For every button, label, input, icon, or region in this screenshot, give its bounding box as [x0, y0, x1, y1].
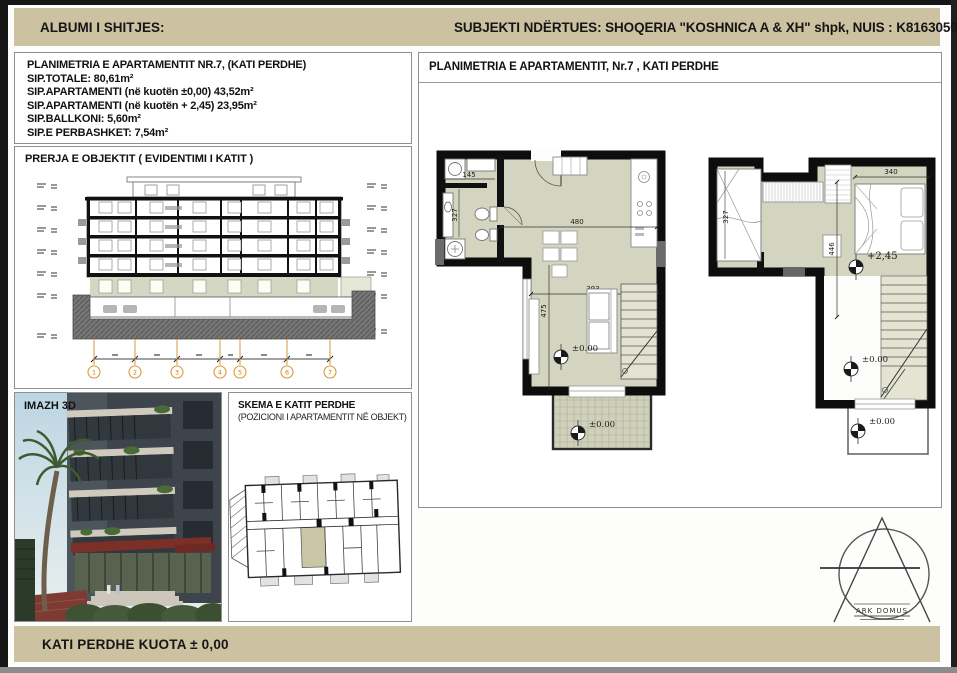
plan1-dim-327: 327: [451, 208, 459, 221]
info-line-total: SIP.TOTALE: 80,61m²: [27, 73, 407, 87]
building-section-drawing: 1 2 3 4 5 6 7: [15, 169, 411, 387]
ark-domus-logo-icon: ARK DOMUS: [818, 512, 946, 624]
apartment-7-highlight: [301, 527, 326, 568]
plan1-dim-145: 145: [462, 171, 475, 179]
plan2-dim-340: 340: [884, 168, 897, 176]
plan2-level-void: ±0.00: [862, 355, 888, 365]
axis-bubble-label: 3: [175, 370, 179, 377]
logo-text: ARK DOMUS: [856, 607, 908, 615]
page-frame-bottom: [0, 667, 957, 673]
info-line-balcony: SIP.BALLKONI: 5,60m²: [27, 113, 407, 127]
schema-title: SKEMA E KATIT PERDHE: [229, 393, 411, 411]
footer-band: KATI PERDHE KUOTA ± 0,00: [14, 626, 940, 662]
info-line-apt-0: SIP.APARTAMENTI (në kuotën ±0,00) 43,52m…: [27, 86, 407, 100]
render-3d-label: IMAZH 3D: [24, 400, 76, 412]
plan2-dim-446: 446: [828, 242, 836, 256]
axis-bubble-label: 1: [92, 370, 96, 377]
page-frame-top: [0, 0, 957, 5]
info-line-common: SIP.E PERBASHKET: 7,54m²: [27, 127, 407, 141]
building-section-box: PRERJA E OBJEKTIT ( EVIDENTIMI I KATIT ): [14, 146, 412, 389]
plan1-level-balcony: ±0.00: [589, 420, 615, 430]
plan2-level-balcony: ±0.00: [869, 417, 895, 427]
builder-subject: SUBJEKTI NDËRTUES: SHOQERIA "KOSHNICA A …: [454, 20, 957, 35]
info-line-apt-245: SIP.APARTAMENTI (në kuotën + 2,45) 23,95…: [27, 100, 407, 114]
apartment-info-box: PLANIMETRIA E APARTAMENTIT NR.7, (KATI P…: [14, 52, 412, 144]
building-render-illustration: [15, 393, 221, 621]
plan2-level-upper: +2,45: [867, 251, 898, 262]
info-title: PLANIMETRIA E APARTAMENTIT NR.7, (KATI P…: [27, 59, 407, 73]
page-frame-left: [0, 0, 8, 673]
schema-subtitle: (POZICIONI I APARTAMENTIT NË OBJEKT): [229, 411, 411, 422]
level-marks-left: [37, 184, 57, 338]
floor-schema-drawing: [229, 449, 411, 619]
sales-album-page: ALBUMI I SHITJES: SUBJEKTI NDËRTUES: SHO…: [0, 0, 957, 673]
album-title: ALBUMI I SHITJES:: [14, 20, 414, 35]
render-3d-box: IMAZH 3D: [14, 392, 222, 622]
axis-bubble-label: 6: [285, 370, 289, 377]
floor-plan-level-0: 145 327 480: [435, 149, 670, 454]
plans-title: PLANIMETRIA E APARTAMENTIT, Nr.7 , KATI …: [419, 53, 941, 83]
plan1-dim-480: 480: [570, 218, 583, 226]
floor-plans-panel: PLANIMETRIA E APARTAMENTIT, Nr.7 , KATI …: [418, 52, 942, 508]
axis-bubble-label: 7: [328, 370, 332, 377]
axis-bubble-label: 2: [133, 370, 137, 377]
axis-bubble-label: 4: [218, 370, 222, 377]
plan2-dim-327: 327: [722, 210, 730, 223]
footer-floor-label: KATI PERDHE KUOTA ± 0,00: [42, 637, 229, 652]
floor-plan-level-245: 340 327 446 +2,45 ±0.00 ±0.00: [705, 157, 940, 457]
section-title: PRERJA E OBJEKTIT ( EVIDENTIMI I KATIT ): [15, 147, 411, 165]
plan1-dim-475: 475: [540, 304, 548, 317]
floor-schema-box: SKEMA E KATIT PERDHE (POZICIONI I APARTA…: [228, 392, 412, 622]
grid-axis-bubbles: 1 2 3 4 5 6 7: [88, 366, 336, 378]
axis-bubble-label: 5: [238, 370, 242, 377]
studio-logo: ARK DOMUS: [818, 512, 946, 624]
page-frame-right: [951, 0, 957, 673]
header-band: ALBUMI I SHITJES: SUBJEKTI NDËRTUES: SHO…: [14, 8, 940, 46]
plan1-level-main: ±0.00: [572, 344, 598, 354]
